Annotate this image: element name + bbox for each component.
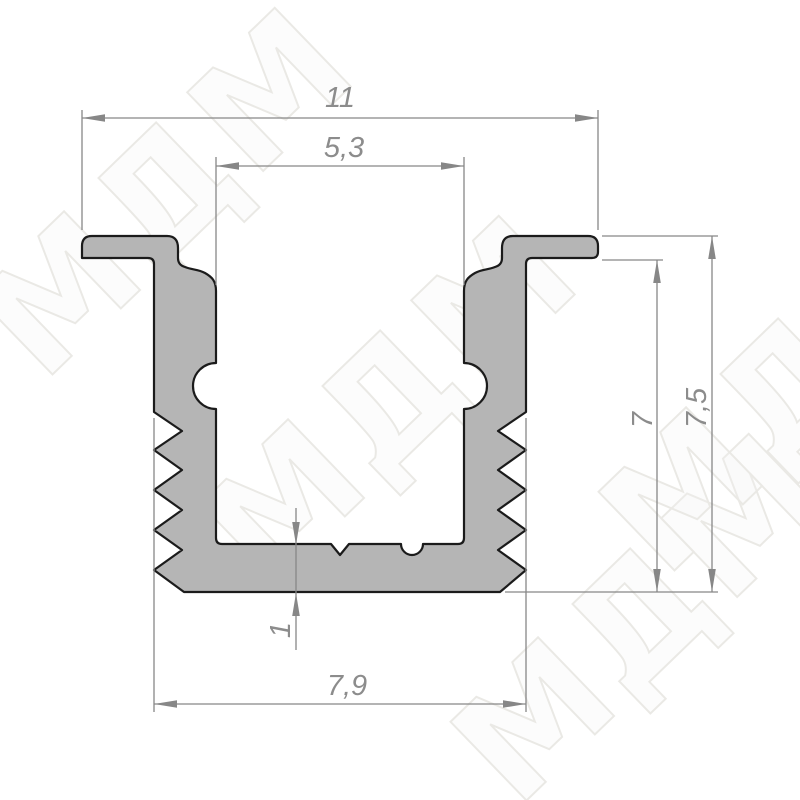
- dimension-overall-height: 7,5: [505, 236, 718, 592]
- dim-label-inner-depth: 7: [627, 410, 659, 428]
- arrowhead-right: [503, 700, 526, 708]
- profile-cross-section: [82, 236, 598, 592]
- arrowhead-left: [82, 114, 105, 122]
- technical-drawing: 11 5,3 7,9 7: [0, 0, 800, 800]
- dim-label-opening-width: 5,3: [324, 132, 364, 164]
- extension-lines: [82, 110, 598, 230]
- dim-label-overall-width: 11: [325, 82, 355, 114]
- dim-label-bottom-thickness: 1: [265, 622, 297, 638]
- arrowhead-top: [708, 236, 716, 259]
- extension-lines: [216, 157, 464, 285]
- drawing-canvas: МДМ МДМ МДМ МДМ 11 5,3 7,9: [0, 0, 800, 800]
- dimension-inner-depth: 7: [602, 260, 663, 592]
- arrowhead-right: [575, 114, 598, 122]
- dimension-opening-width: 5,3: [216, 132, 464, 285]
- arrowhead-left: [216, 162, 239, 170]
- arrowhead-upper: [292, 522, 300, 545]
- arrowhead-lower: [292, 593, 300, 616]
- dim-label-body-width: 7,9: [327, 670, 367, 702]
- arrowhead-bottom: [708, 569, 716, 592]
- arrowhead-right: [441, 162, 464, 170]
- arrowhead-left: [154, 700, 177, 708]
- arrowhead-bottom: [653, 569, 661, 592]
- dim-label-overall-height: 7,5: [681, 387, 713, 428]
- arrowhead-top: [653, 260, 661, 283]
